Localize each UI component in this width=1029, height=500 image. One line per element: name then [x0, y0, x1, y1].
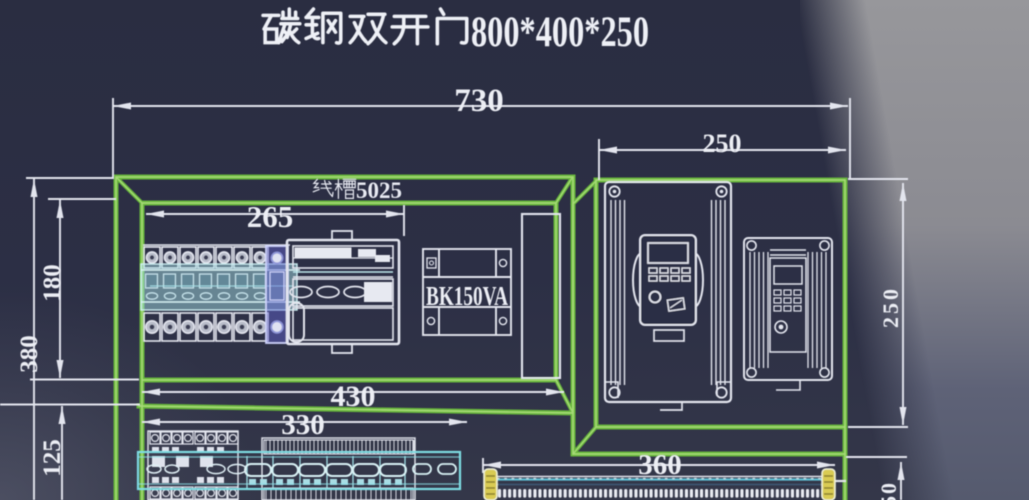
svg-text:265: 265 — [247, 199, 294, 234]
svg-text:125: 125 — [39, 439, 66, 477]
svg-text:250: 250 — [703, 129, 742, 158]
svg-text:380: 380 — [16, 335, 43, 373]
svg-text:330: 330 — [281, 409, 325, 441]
svg-text:360: 360 — [638, 449, 682, 481]
svg-text:800*400*250: 800*400*250 — [471, 9, 649, 56]
svg-text:50: 50 — [876, 481, 901, 500]
svg-text:180: 180 — [39, 264, 66, 302]
svg-text:BK150VA: BK150VA — [426, 281, 508, 311]
svg-text:430: 430 — [331, 380, 376, 413]
svg-text:5025: 5025 — [356, 178, 402, 203]
svg-text:250: 250 — [878, 286, 903, 328]
svg-text:730: 730 — [454, 83, 504, 119]
